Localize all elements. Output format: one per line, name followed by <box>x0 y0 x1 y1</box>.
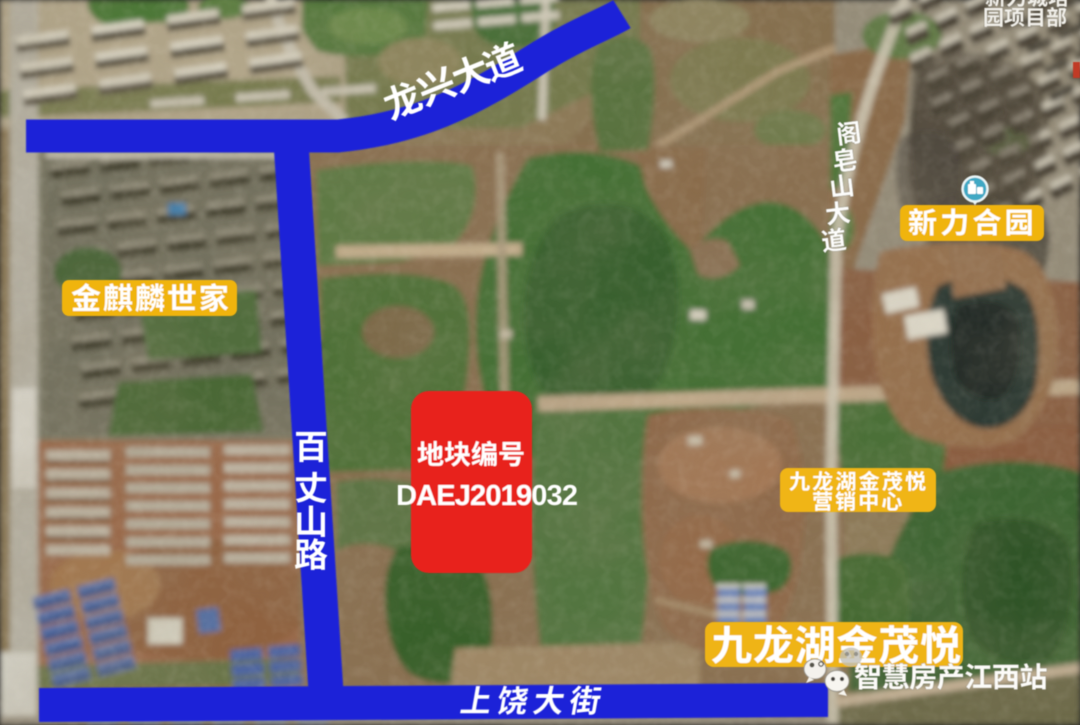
svg-text:DAEJ2019032: DAEJ2019032 <box>396 480 578 512</box>
